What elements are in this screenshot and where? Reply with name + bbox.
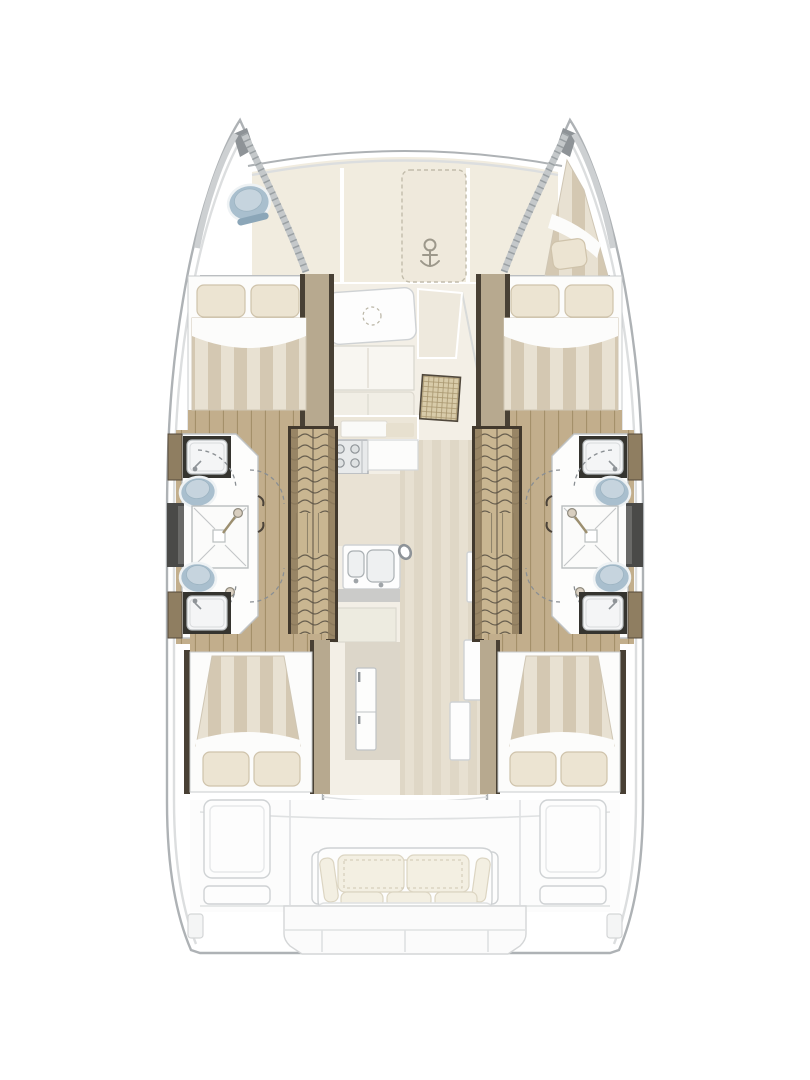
catamaran-floor-plan — [0, 0, 810, 1080]
floor-plan-svg — [0, 0, 810, 1080]
anchor-locker — [402, 170, 466, 282]
starboard-staircase — [472, 426, 522, 642]
bow-berth-pillow — [550, 238, 588, 270]
aft-bed-pillow — [203, 752, 249, 786]
bathroom-sink — [183, 592, 231, 634]
saloon-bench — [324, 346, 414, 426]
port-bathroom — [167, 430, 296, 644]
port-staircase — [288, 426, 338, 642]
port-forward-cabin — [188, 274, 334, 434]
aft-bed-pillow — [254, 752, 300, 786]
port-aft-cabin — [184, 634, 330, 794]
saloon-table — [327, 287, 416, 345]
rattan-cabinet — [420, 375, 461, 422]
foredeck — [248, 151, 562, 284]
bathroom-sink — [183, 436, 231, 478]
galley-fridge — [345, 642, 400, 760]
starboard-forward-cabin — [476, 274, 622, 434]
forward-bed-pillow — [197, 285, 245, 317]
forward-bed-pillow — [251, 285, 299, 317]
sofa-back-cushion — [338, 855, 404, 892]
starboard-bathroom — [514, 430, 643, 644]
sofa-back-cushion — [407, 855, 469, 892]
saloon-side-cabinet — [418, 289, 462, 358]
starboard-aft-cabin — [480, 634, 626, 794]
